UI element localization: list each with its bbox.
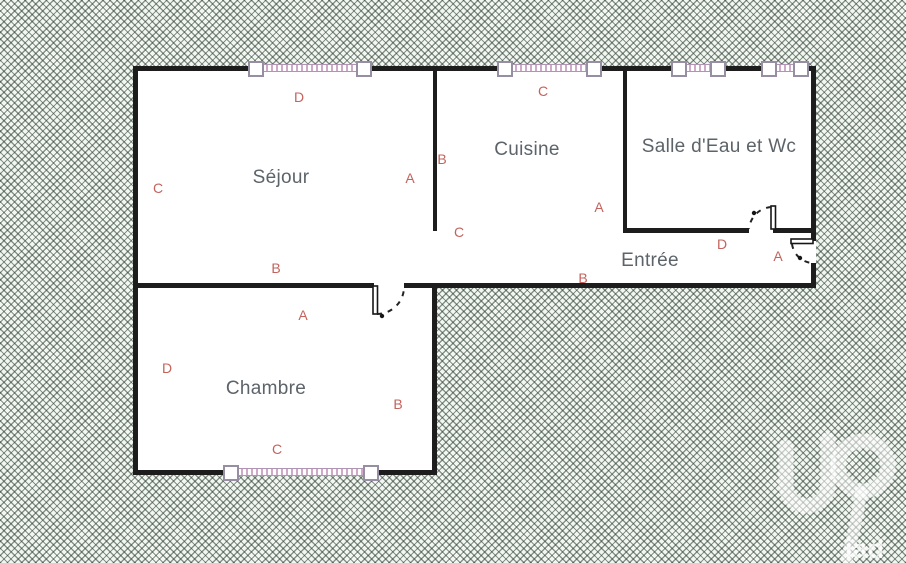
iad-logo-ring [838, 441, 888, 491]
iad-logo-text: iad [845, 534, 884, 563]
floor-plan-canvas: SéjourCuisineSalle d'Eau et WcEntréeCham… [0, 0, 906, 563]
iad-logo: iad [0, 0, 906, 563]
iad-logo-u-shape [786, 440, 828, 506]
